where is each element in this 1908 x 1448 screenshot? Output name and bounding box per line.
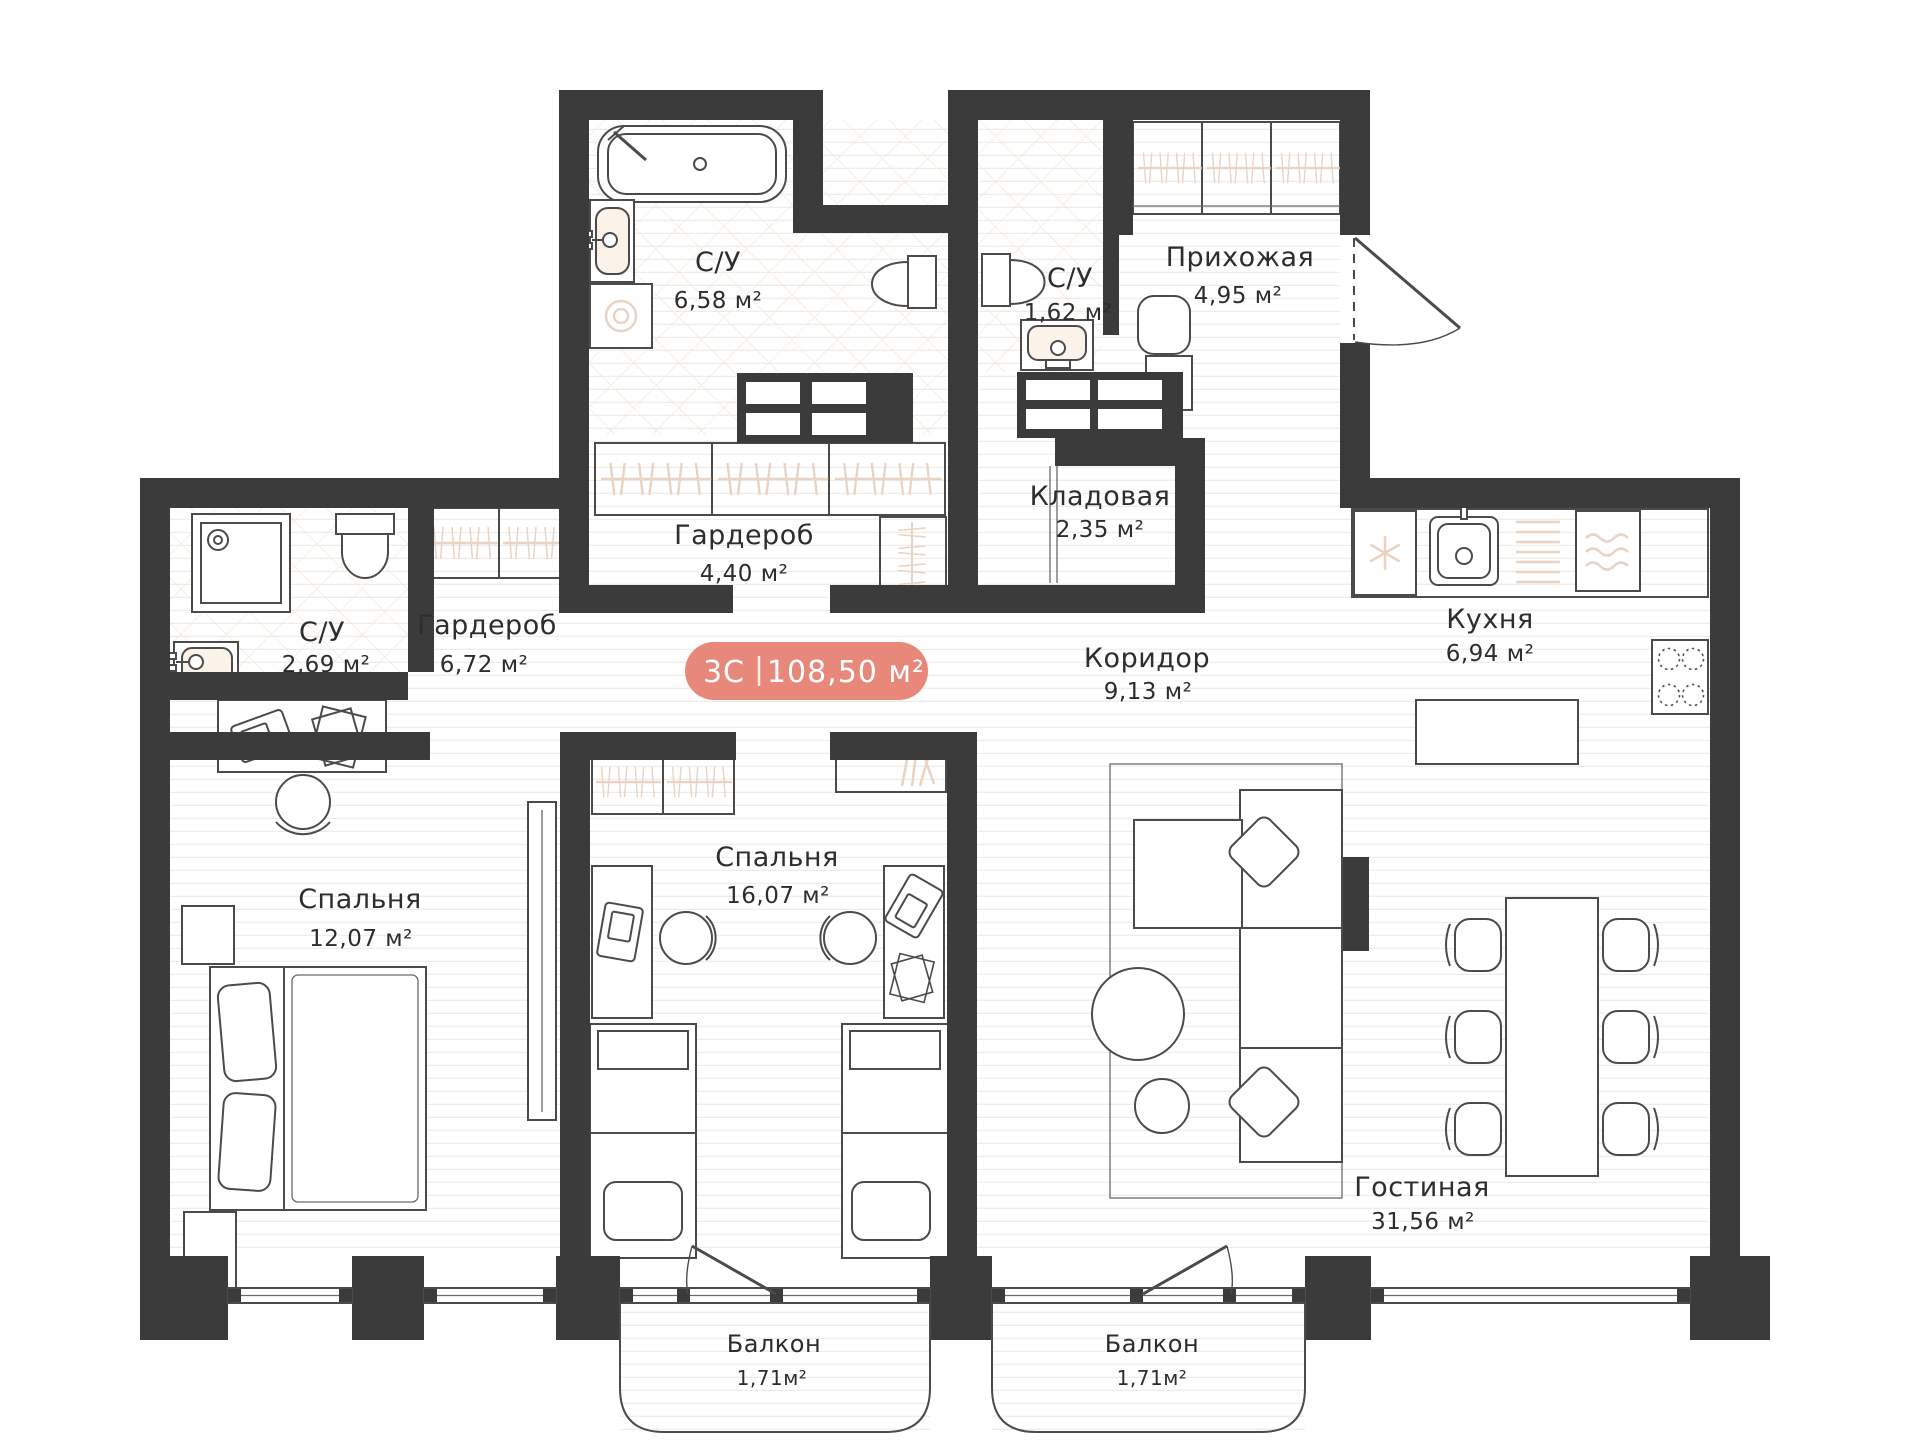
area-badge: 3С 108,50 м² <box>685 642 928 700</box>
room-area-storage: 2,35 м² <box>1056 517 1145 543</box>
dishwasher-icon <box>1576 511 1640 591</box>
room-area-bathroom-main: 6,58 м² <box>674 288 763 314</box>
nightstand-icon <box>182 906 234 964</box>
wardrobe-icon <box>528 802 556 1120</box>
room-name-balcony-2: Балкон <box>1105 1330 1199 1358</box>
room-name-storage: Кладовая <box>1030 481 1171 512</box>
room-area-living-room: 31,56 м² <box>1371 1209 1475 1235</box>
shower-icon <box>192 514 290 612</box>
floor-plan: С/У 6,58 м² С/У 1,62 м² Прихожая 4,95 м²… <box>0 0 1908 1448</box>
fridge-snowflake-icon <box>1354 511 1416 595</box>
room-name-kitchen: Кухня <box>1446 604 1534 635</box>
badge-total-area: 108,50 м² <box>767 655 925 690</box>
room-area-wardrobe-top: 4,40 м² <box>700 561 789 587</box>
window-icon <box>620 1288 930 1303</box>
room-area-bedroom-2: 16,07 м² <box>726 883 830 909</box>
room-name-balcony-1: Балкон <box>727 1330 821 1358</box>
towels-icon <box>1516 522 1560 582</box>
room-area-bathroom-left: 2,69 м² <box>282 652 371 678</box>
room-name-bathroom-small: С/У <box>1047 263 1093 294</box>
bed-icon <box>210 967 426 1210</box>
desk-icon <box>592 866 652 1018</box>
sink-icon <box>1021 320 1093 370</box>
room-name-hallway: Прихожая <box>1166 242 1315 273</box>
room-area-balcony-1: 1,71м² <box>737 1366 808 1390</box>
window-icon <box>1371 1288 1690 1303</box>
dining-table-icon <box>1446 898 1658 1176</box>
desk-icon <box>884 866 944 1018</box>
room-area-kitchen: 6,94 м² <box>1446 641 1535 667</box>
niche-wall <box>1017 372 1183 438</box>
stove-burners-icon <box>1652 640 1708 714</box>
room-name-bathroom-main: С/У <box>695 247 741 278</box>
niche-wall <box>737 373 913 443</box>
kitchen-island <box>1416 700 1578 764</box>
room-name-living-room: Гостиная <box>1354 1172 1490 1203</box>
bed-icon <box>590 1024 696 1258</box>
room-name-wardrobe-left: Гардероб <box>417 610 557 641</box>
room-name-corridor: Коридор <box>1084 643 1210 674</box>
room-name-bedroom-1: Спальня <box>298 884 422 915</box>
coffee-table-icon <box>1092 968 1184 1060</box>
bathtub-icon <box>598 126 786 202</box>
entrance-door-icon <box>1354 238 1460 345</box>
window-icon <box>228 1288 352 1303</box>
coffee-table-icon <box>1135 1079 1189 1133</box>
window-icon <box>424 1288 556 1303</box>
room-area-bathroom-small: 1,62 м² <box>1024 300 1113 326</box>
room-area-wardrobe-left: 6,72 м² <box>440 652 529 678</box>
washing-machine-icon <box>590 284 652 348</box>
room-name-wardrobe-top: Гардероб <box>674 520 814 551</box>
room-name-bathroom-left: С/У <box>299 617 345 648</box>
bed-icon <box>842 1024 948 1258</box>
room-name-bedroom-2: Спальня <box>715 842 839 873</box>
badge-type: 3С <box>703 655 745 690</box>
room-area-balcony-2: 1,71м² <box>1117 1366 1188 1390</box>
room-area-corridor: 9,13 м² <box>1104 679 1193 705</box>
room-area-hallway: 4,95 м² <box>1194 283 1283 309</box>
floor-plan-page: С/У 6,58 м² С/У 1,62 м² Прихожая 4,95 м²… <box>0 0 1908 1448</box>
tv-icon <box>1343 857 1369 951</box>
room-area-bedroom-1: 12,07 м² <box>309 926 413 952</box>
